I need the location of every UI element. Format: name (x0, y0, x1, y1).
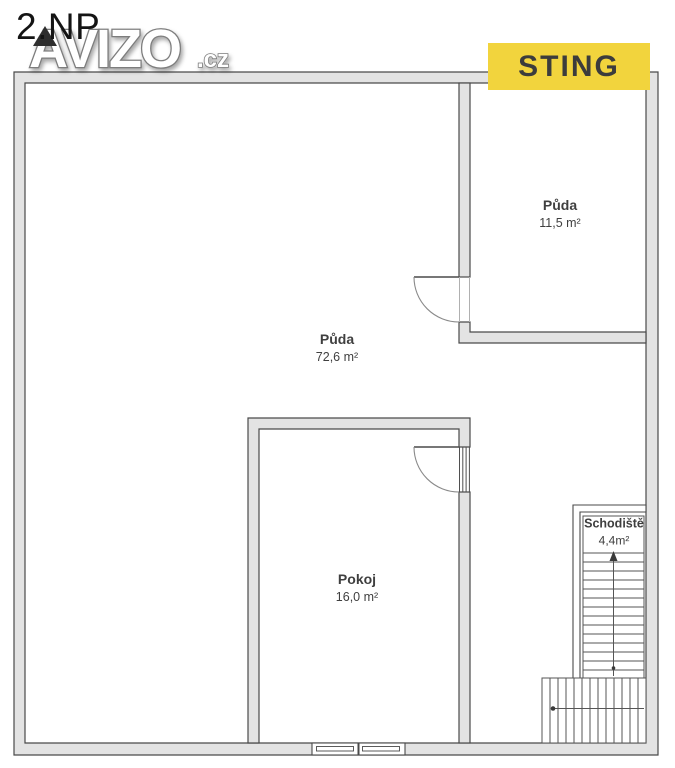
room-label-puda-small: Půda 11,5 m² (539, 196, 580, 232)
door-swing-arc (414, 277, 459, 322)
room-name: Pokoj (336, 570, 378, 589)
floor-title: 2.NP (16, 6, 100, 48)
room-label-puda-large: Půda 72,6 m² (316, 330, 358, 366)
sting-badge: STING (488, 43, 650, 90)
room-area: 72,6 m² (316, 349, 358, 366)
room-name: Půda (539, 196, 580, 215)
room-area: 11,5 m² (539, 215, 580, 232)
room-name: Schodiště (584, 515, 644, 532)
watermark-suffix: .cz (197, 46, 229, 73)
stair-start-dot (551, 706, 556, 711)
door-swing-arc (414, 447, 459, 492)
room-area: 4,4m² (584, 532, 644, 548)
room-label-pokoj: Pokoj 16,0 m² (336, 570, 378, 606)
puda-small-door (414, 277, 459, 322)
pokoj-window (312, 743, 405, 755)
room-name: Půda (316, 330, 358, 349)
pokoj-door-window (414, 447, 469, 492)
floorplan-drawing: AVIZO .cz (0, 0, 675, 768)
outer-wall (14, 72, 658, 755)
room-area: 16,0 m² (336, 589, 378, 606)
floorplan-page: AVIZO .cz 2.NP STING Půda 11,5 m² Půda 7… (0, 0, 675, 768)
room-label-schodiste: Schodiště 4,4m² (584, 515, 644, 548)
